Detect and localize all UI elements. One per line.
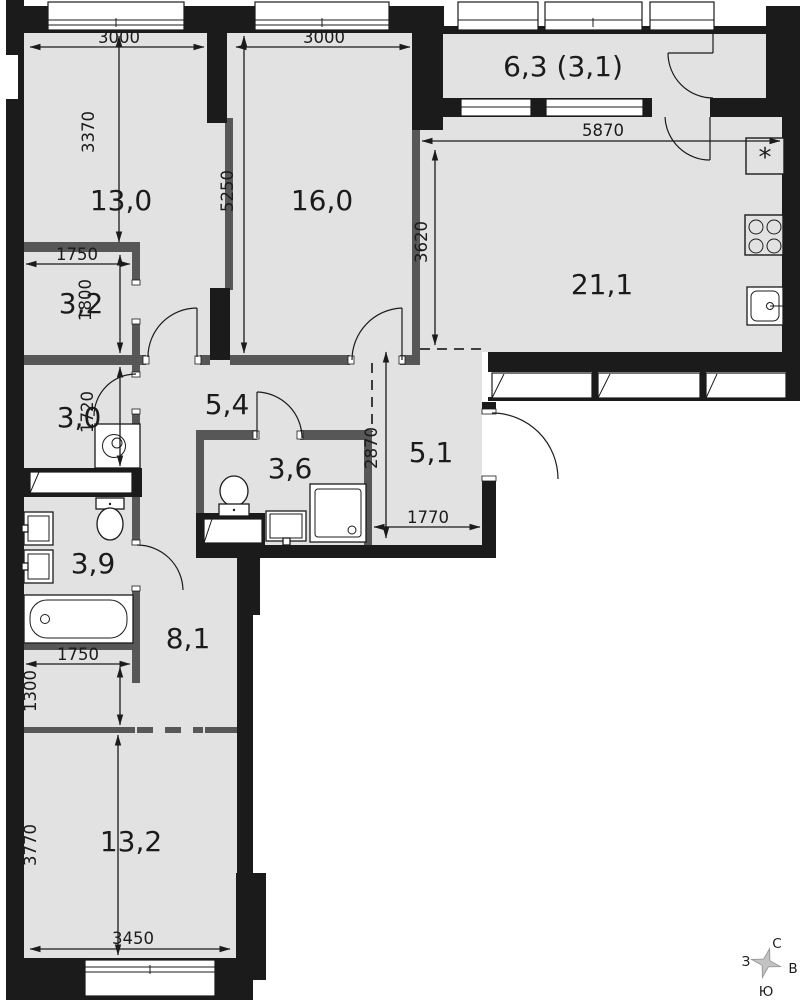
dim-label-3450: 3450 xyxy=(112,929,154,948)
dim-label-1300: 1300 xyxy=(21,670,40,712)
bathtub-icon xyxy=(24,595,133,643)
toilet-icon-bathroom-2 xyxy=(96,498,124,540)
room-label-kitchen: 21,1 xyxy=(571,268,633,301)
room-label-bathroom: 3,6 xyxy=(268,452,313,485)
room-label-3-0: 3,0 xyxy=(57,401,102,434)
room-label-balcony: 6,3 (3,1) xyxy=(503,50,623,83)
fridge-icon: * xyxy=(746,138,784,174)
washbasin-icon-2 xyxy=(22,550,53,583)
compass-rose: С Ю З В xyxy=(742,936,798,1000)
room-label-bathroom-2: 3,9 xyxy=(71,547,116,580)
toilet-icon-bathroom xyxy=(219,476,249,516)
room-label-corridor: 5,4 xyxy=(205,388,250,421)
floor-plan-svg: * xyxy=(0,0,801,1000)
room-label-16-0: 16,0 xyxy=(291,184,353,217)
washing-machine-icon xyxy=(95,424,140,468)
washbasin-icon-1 xyxy=(22,512,53,545)
dim-label-5250: 5250 xyxy=(218,170,237,212)
stove-icon xyxy=(745,215,783,255)
room-label-3-2: 3,2 xyxy=(59,287,104,320)
compass-north: С xyxy=(772,936,781,952)
dim-label-3000-left: 3000 xyxy=(98,28,140,47)
room-label-hallway: 8,1 xyxy=(166,622,211,655)
dim-label-1770: 1770 xyxy=(407,508,449,527)
room-label-entry: 5,1 xyxy=(409,436,454,469)
dim-label-3370: 3370 xyxy=(79,111,98,153)
dim-label-5870: 5870 xyxy=(582,121,624,140)
dim-label-3620: 3620 xyxy=(412,221,431,263)
dim-label-1750-top: 1750 xyxy=(56,245,98,264)
window-room-16-0 xyxy=(255,2,389,30)
kitchen-sink-icon xyxy=(747,287,783,325)
shower-icon xyxy=(310,484,366,542)
vent-shaft-icon xyxy=(30,472,132,493)
window-room-13-2 xyxy=(85,960,215,996)
balcony-glazing-top xyxy=(458,2,714,30)
compass-east: В xyxy=(788,961,797,977)
vent-shaft-icon-2 xyxy=(204,519,262,543)
dim-label-3770: 3770 xyxy=(21,824,40,866)
entry-door xyxy=(492,413,558,479)
room-label-13-0: 13,0 xyxy=(90,184,152,217)
entry-door-opening xyxy=(482,414,496,477)
dim-label-1750-bottom: 1750 xyxy=(57,645,99,664)
compass-south: Ю xyxy=(759,984,774,1000)
washbasin-icon-bathroom xyxy=(266,511,306,545)
window-room-13-0 xyxy=(48,2,184,30)
balcony-kitchen-windows xyxy=(461,98,710,117)
dim-label-2870: 2870 xyxy=(362,427,381,469)
compass-west: З xyxy=(742,954,751,970)
floor-plan: * xyxy=(0,0,801,1000)
dim-label-3000-right: 3000 xyxy=(303,28,345,47)
kitchen-south-windows xyxy=(492,373,786,398)
room-label-13-2: 13,2 xyxy=(100,825,162,858)
fridge-symbol: * xyxy=(759,143,772,173)
